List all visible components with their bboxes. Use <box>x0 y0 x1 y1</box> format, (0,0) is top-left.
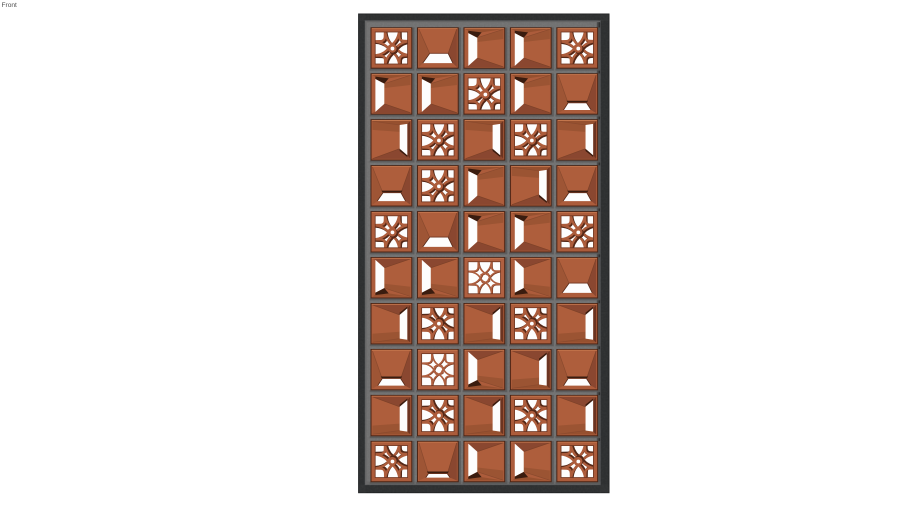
svg-text:Front: Front <box>2 2 18 9</box>
